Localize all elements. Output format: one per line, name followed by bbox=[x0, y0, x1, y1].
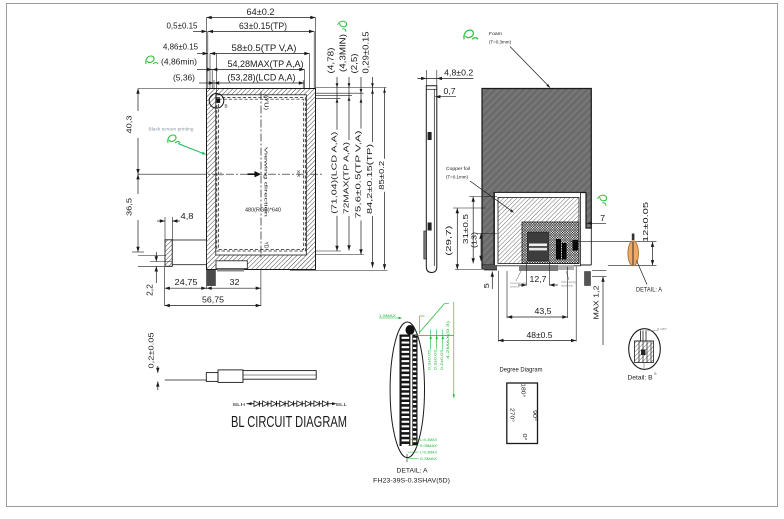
svg-text:36,5: 36,5 bbox=[125, 198, 134, 216]
svg-text:B: B bbox=[224, 104, 227, 109]
svg-text:(T=0.3mm): (T=0.3mm) bbox=[489, 40, 511, 45]
svg-text:1.5MAX: 1.5MAX bbox=[379, 313, 396, 318]
svg-text:4,8: 4,8 bbox=[181, 212, 195, 221]
svg-text:(13): (13) bbox=[470, 231, 479, 248]
svg-text:56,75: 56,75 bbox=[202, 296, 225, 305]
svg-text:BLH: BLH bbox=[233, 402, 246, 408]
svg-text:(71,04)(LCD A,A): (71,04)(LCD A,A) bbox=[330, 131, 339, 214]
svg-text:position: position bbox=[510, 285, 520, 289]
svg-text:4,8±0.2: 4,8±0.2 bbox=[444, 68, 474, 77]
svg-text:tape(mark): tape(mark) bbox=[561, 284, 573, 288]
svg-text:43,5: 43,5 bbox=[535, 307, 553, 316]
svg-text:32: 32 bbox=[230, 278, 241, 287]
svg-text:0.087: 0.087 bbox=[657, 327, 667, 331]
svg-text:XR: XR bbox=[296, 170, 301, 177]
svg-text:58±0.5(TP V,A): 58±0.5(TP V,A) bbox=[232, 43, 297, 53]
svg-text:5: 5 bbox=[482, 283, 491, 288]
svg-text:270°: 270° bbox=[509, 408, 515, 422]
svg-text:72MAX(TP A,A): 72MAX(TP A,A) bbox=[342, 141, 351, 214]
svg-text:(T=0.1mm): (T=0.1mm) bbox=[446, 175, 468, 180]
svg-text:Degree Diagram: Degree Diagram bbox=[500, 367, 543, 374]
svg-text:0,5±0.15: 0,5±0.15 bbox=[167, 21, 198, 31]
svg-text:0.3±0.05: 0.3±0.05 bbox=[428, 350, 432, 370]
svg-text:(4,3MIN): (4,3MIN) bbox=[339, 34, 348, 72]
svg-text:Foam: Foam bbox=[489, 31, 502, 36]
svg-text:90°: 90° bbox=[531, 410, 537, 421]
svg-text:64±0.2: 64±0.2 bbox=[247, 7, 275, 17]
svg-text:MAX 1,2: MAX 1,2 bbox=[592, 286, 601, 320]
svg-text:0,7: 0,7 bbox=[444, 87, 457, 96]
svg-text:0.3±0.03: 0.3±0.03 bbox=[434, 350, 438, 370]
svg-text:(53,28)(LCD A,A): (53,28)(LCD A,A) bbox=[228, 73, 296, 83]
svg-text:24,75: 24,75 bbox=[175, 278, 199, 287]
svg-text:40,3: 40,3 bbox=[125, 116, 134, 134]
svg-text:BLL: BLL bbox=[336, 402, 347, 408]
svg-text:(YU): (YU) bbox=[263, 95, 269, 110]
svg-text:12±0.05: 12±0.05 bbox=[641, 202, 650, 242]
svg-text:75,6±0.5(TP V,A): 75,6±0.5(TP V,A) bbox=[354, 130, 363, 219]
svg-text:7: 7 bbox=[600, 214, 606, 223]
svg-text:0,29±0.15: 0,29±0.15 bbox=[362, 31, 371, 74]
svg-text:Detail: B: Detail: B bbox=[628, 375, 653, 382]
svg-text:(29,7): (29,7) bbox=[444, 225, 453, 256]
svg-text:DETAIL: A: DETAIL: A bbox=[636, 287, 662, 293]
svg-text:Black screen printing: Black screen printing bbox=[149, 127, 195, 132]
svg-text:FH23-39S-0.3SHAV(5D): FH23-39S-0.3SHAV(5D) bbox=[373, 479, 450, 485]
svg-text:0.3MAX: 0.3MAX bbox=[420, 457, 438, 461]
svg-text:0°: 0° bbox=[521, 434, 527, 441]
svg-text:63±0.15(TP): 63±0.15(TP) bbox=[239, 21, 287, 31]
svg-text:48±0.5: 48±0.5 bbox=[527, 331, 554, 340]
svg-text:BL CIRCUIT DIAGRAM: BL CIRCUIT DIAGRAM bbox=[231, 414, 347, 431]
svg-text:Viewing direction: Viewing direction bbox=[263, 147, 268, 218]
svg-text:DETAIL: A: DETAIL: A bbox=[397, 468, 429, 475]
svg-text:X: X bbox=[220, 172, 223, 177]
svg-text:54,28MAX(TP A,A): 54,28MAX(TP A,A) bbox=[228, 59, 304, 69]
svg-text:2,2: 2,2 bbox=[146, 283, 155, 296]
svg-text:0.05MAX: 0.05MAX bbox=[420, 444, 438, 448]
svg-text:L=0.3MAX: L=0.3MAX bbox=[420, 451, 438, 455]
svg-text:4.2MAX(0.3): 4.2MAX(0.3) bbox=[446, 321, 450, 359]
svg-text:(5,36): (5,36) bbox=[173, 73, 195, 83]
svg-text:(2,5): (2,5) bbox=[350, 53, 359, 73]
svg-text:12,7: 12,7 bbox=[530, 275, 548, 284]
svg-text:84,2±0.15(TP): 84,2±0.15(TP) bbox=[365, 143, 374, 214]
svg-text:YD: YD bbox=[263, 242, 269, 249]
svg-text:180°: 180° bbox=[520, 383, 526, 397]
svg-text:31±0.5: 31±0.5 bbox=[461, 214, 470, 244]
svg-text:4,86±0.15: 4,86±0.15 bbox=[163, 42, 198, 52]
svg-text:0,2±0.05: 0,2±0.05 bbox=[147, 333, 156, 369]
svg-text:85±0.2: 85±0.2 bbox=[377, 161, 386, 190]
svg-text:Copper foil: Copper foil bbox=[446, 166, 470, 171]
svg-text:B: B bbox=[654, 372, 656, 376]
svg-text:480(RGB)*640: 480(RGB)*640 bbox=[245, 208, 281, 214]
svg-text:0.2±0.03: 0.2±0.03 bbox=[440, 350, 444, 370]
svg-text:(4,86min): (4,86min) bbox=[161, 57, 197, 67]
svg-text:L=0.3MAX: L=0.3MAX bbox=[420, 438, 438, 442]
svg-text:(4,78): (4,78) bbox=[327, 47, 336, 73]
